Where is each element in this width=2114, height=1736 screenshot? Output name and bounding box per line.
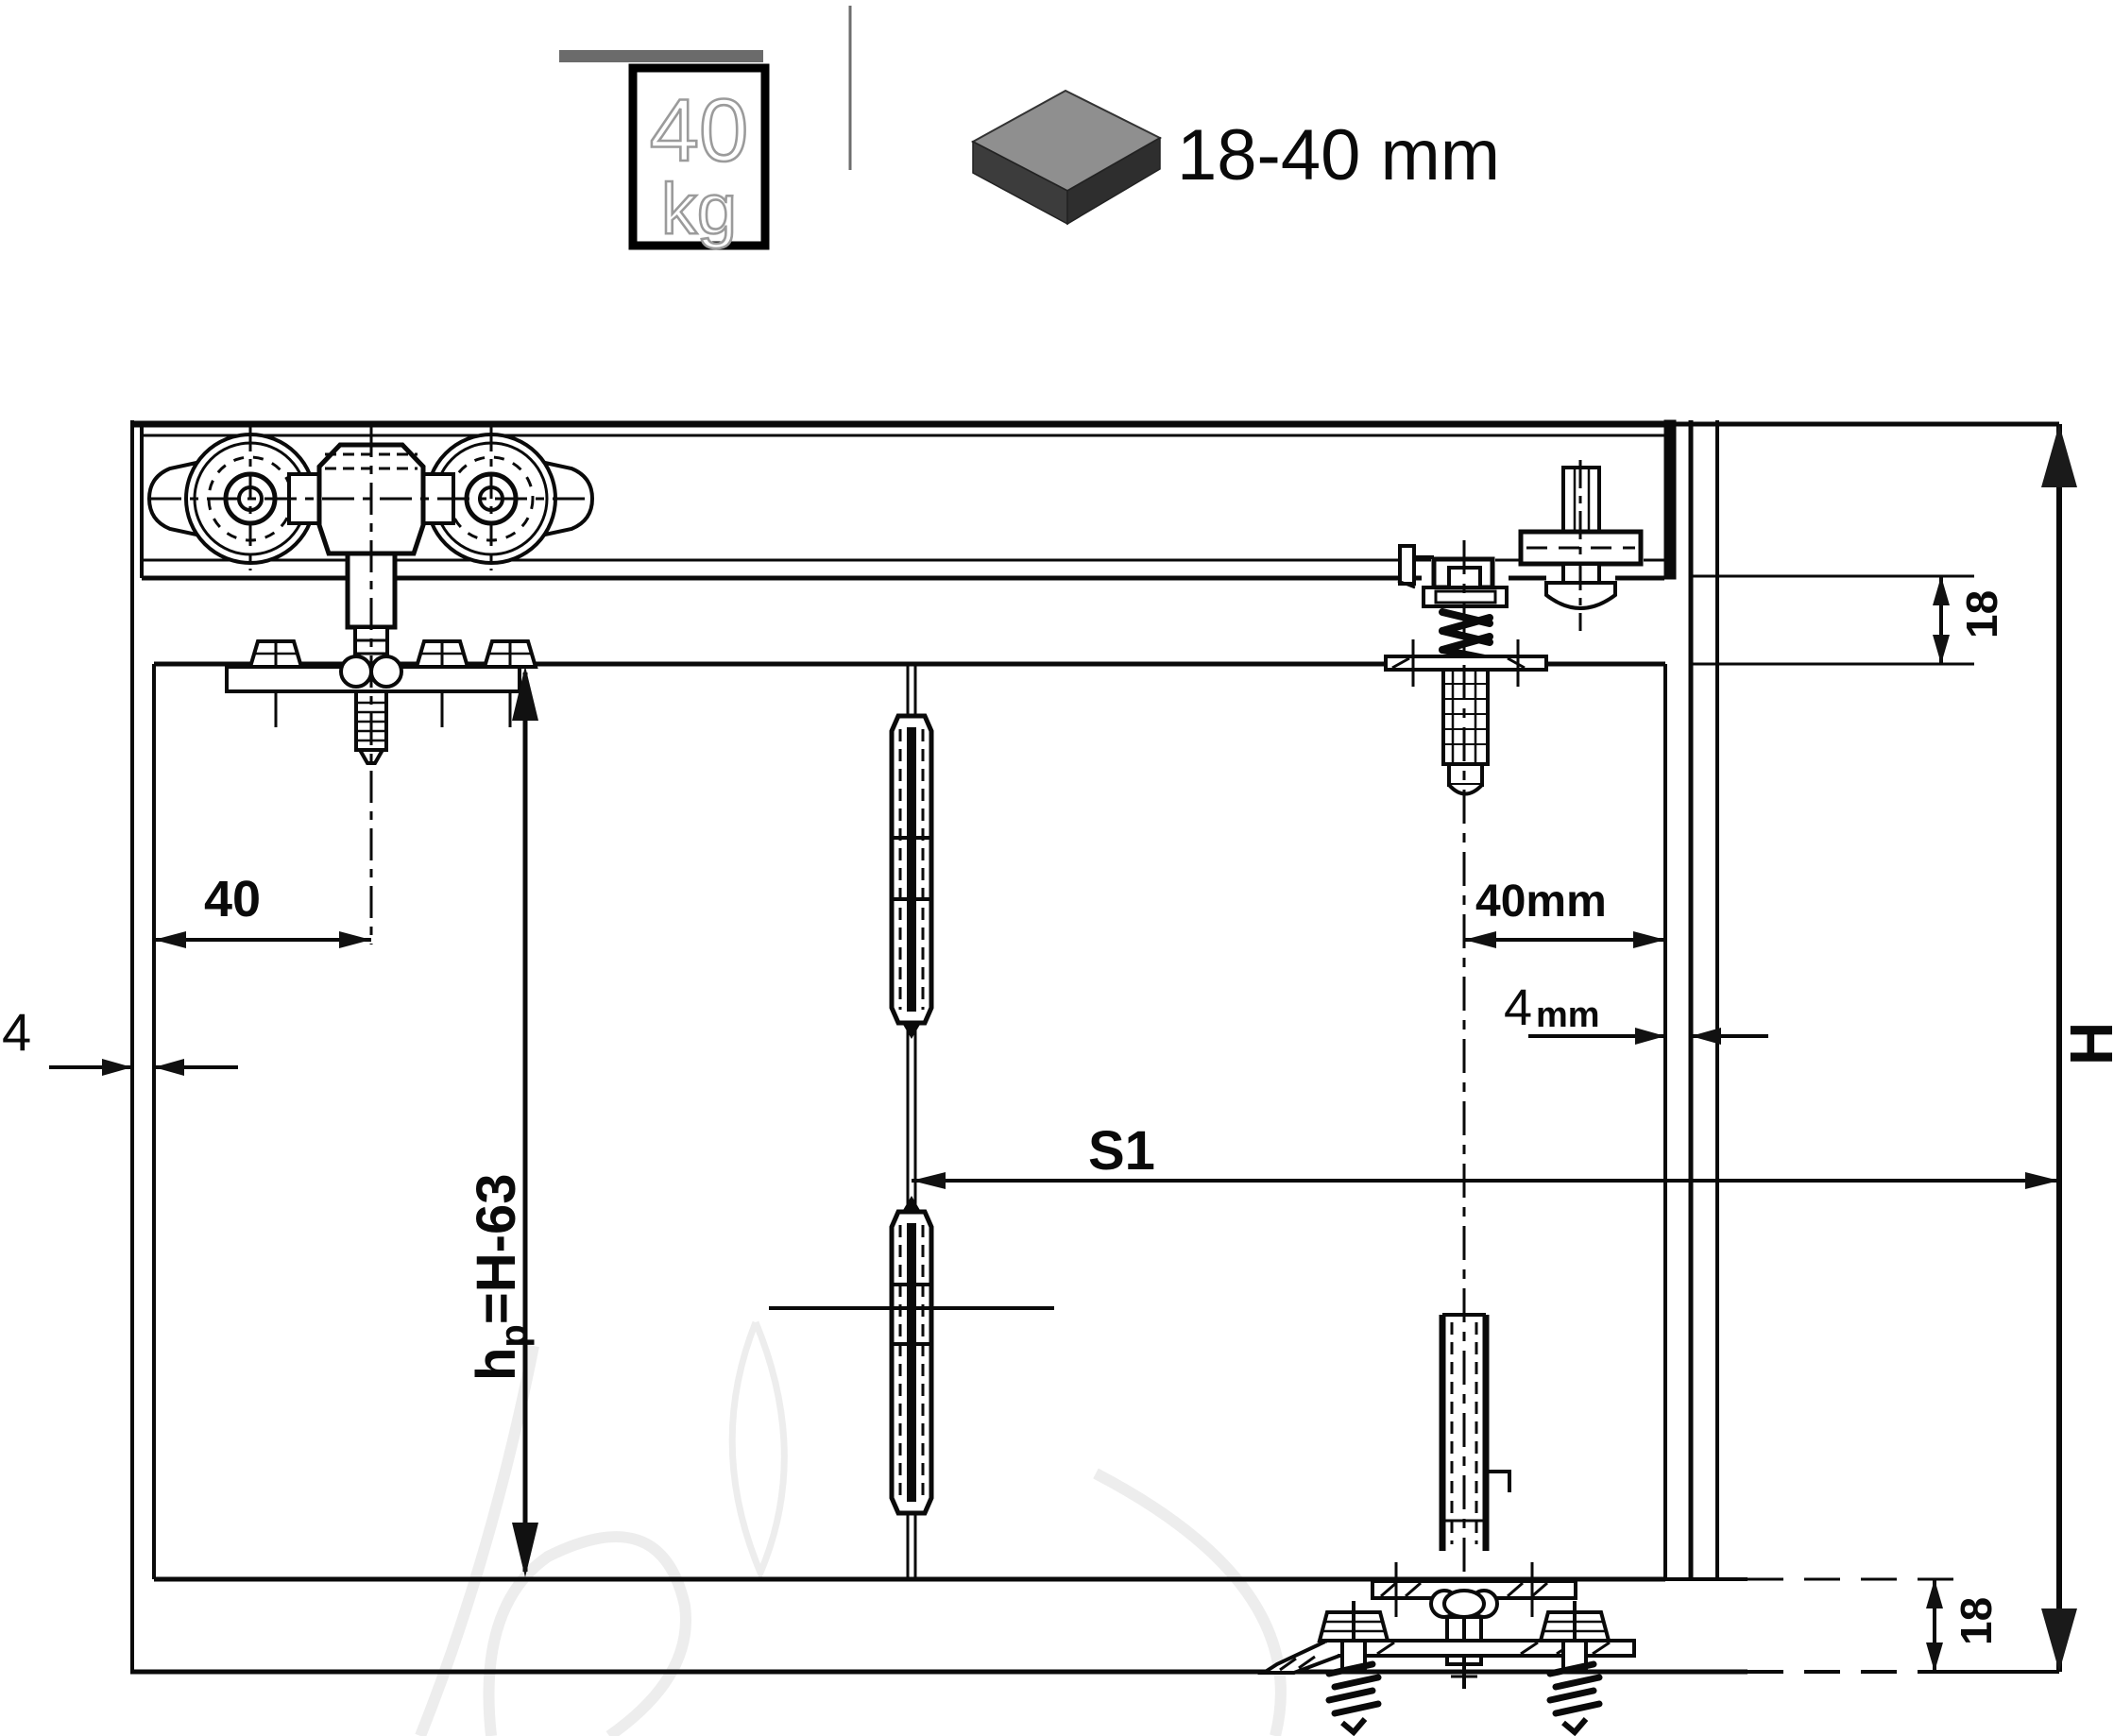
floor-screw-left <box>1320 1601 1388 1732</box>
thickness-label: 18-40 mm <box>1177 115 1500 196</box>
weight-unit: kg <box>661 169 737 249</box>
dim-rear-offset: 40mm <box>1464 877 1665 948</box>
dim-left-gap: 4 <box>2 1002 238 1076</box>
panel-thickness-icon <box>973 91 1160 224</box>
track-screw <box>1521 460 1641 631</box>
dim-front-offset: 40 <box>154 871 371 948</box>
dim-door-height: hp=H-63 <box>466 666 538 1577</box>
top-pivot-assembly <box>1386 540 1546 1681</box>
guide-step <box>1486 1472 1509 1492</box>
total-height-label: H <box>2057 1022 2114 1065</box>
dim-right-gap: 4 mm <box>1504 979 1768 1045</box>
dim-top-clearance: 18 <box>1691 576 2006 664</box>
weight-value: 40 <box>650 80 749 179</box>
dim-bottom-clearance: 18 <box>1665 1579 2001 1672</box>
door-height-rest: =H-63 <box>466 1174 527 1325</box>
door-height-sub: p <box>493 1324 535 1347</box>
center-hinge-joint <box>769 664 1054 1579</box>
front-offset-label: 40 <box>204 871 261 928</box>
top-clearance-label: 18 <box>1957 590 2006 638</box>
right-gap-unit: mm <box>1536 996 1600 1035</box>
adjustment-spring <box>1442 612 1490 659</box>
opening-span-label: S1 <box>1088 1120 1155 1182</box>
technical-drawing-page: 40 kg 18-40 mm <box>0 0 2114 1736</box>
rear-offset-label: 40mm <box>1475 877 1607 927</box>
track-bar-glyph <box>559 50 763 62</box>
track-right-cap <box>1664 420 1676 579</box>
dim-total-height: H <box>2041 424 2114 1672</box>
svg-text:hp=H-63: hp=H-63 <box>466 1174 535 1381</box>
door-height-base: h <box>466 1348 527 1381</box>
wall-and-opening <box>130 420 2059 1672</box>
bottom-clearance-label: 18 <box>1952 1597 2001 1645</box>
left-gap-label: 4 <box>2 1002 31 1062</box>
right-gap-value: 4 <box>1504 979 1532 1036</box>
folding-door-fitting-diagram: 40 kg 18-40 mm <box>0 0 2114 1736</box>
floor-screw-right <box>1541 1601 1609 1732</box>
weight-capacity-icon: 40 kg <box>559 50 765 249</box>
dim-opening-span: S1 <box>912 1120 2059 1189</box>
